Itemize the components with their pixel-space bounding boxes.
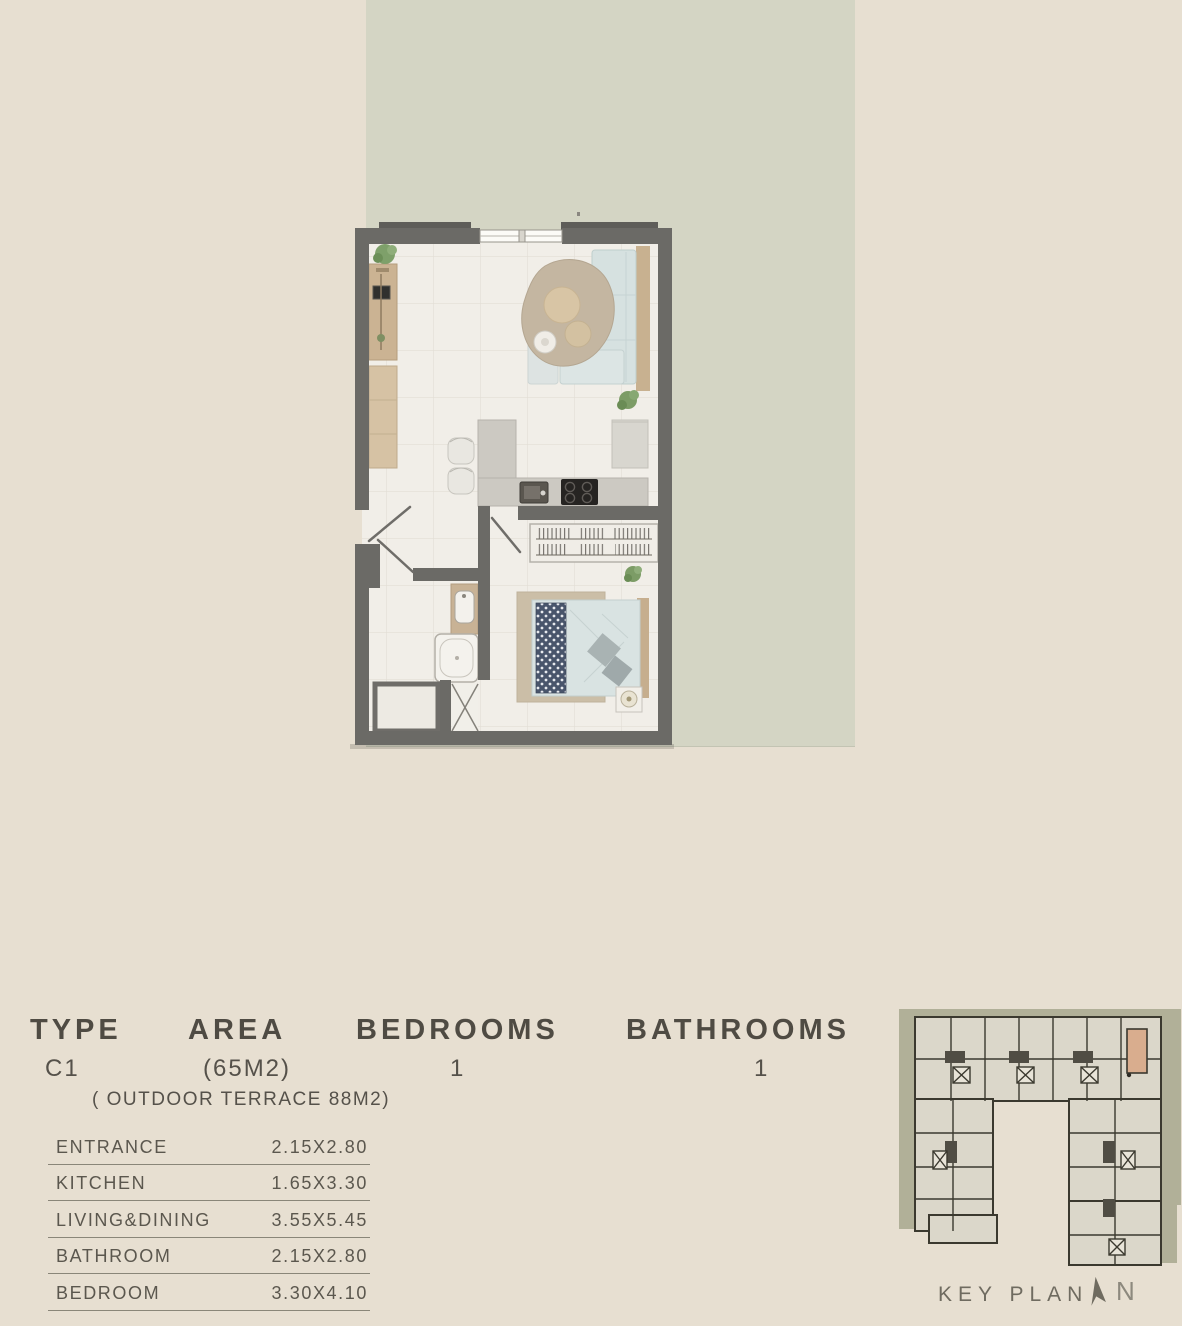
table-row: LIVING&DINING 3.55X5.45 bbox=[48, 1201, 370, 1238]
kitchen-tall-cabinet bbox=[369, 264, 397, 360]
highlighted-unit bbox=[1127, 1029, 1147, 1073]
shower bbox=[452, 684, 478, 731]
kitchen-base-cabinet bbox=[369, 366, 397, 468]
room-size: 2.15X2.80 bbox=[272, 1137, 368, 1158]
room-size: 1.65X3.30 bbox=[272, 1173, 368, 1194]
room-dimensions-table: ENTRANCE 2.15X2.80 KITCHEN 1.65X3.30 LIV… bbox=[48, 1128, 370, 1311]
header-area: AREA bbox=[188, 1014, 286, 1047]
room-label: LIVING&DINING bbox=[56, 1210, 211, 1231]
window bbox=[480, 230, 562, 242]
table-row: KITCHEN 1.65X3.30 bbox=[48, 1165, 370, 1202]
room-label: KITCHEN bbox=[56, 1173, 146, 1194]
floor-plan bbox=[340, 210, 690, 760]
header-bathrooms: BATHROOMS bbox=[626, 1014, 850, 1047]
table-row: ENTRANCE 2.15X2.80 bbox=[48, 1128, 370, 1165]
north-arrow-icon bbox=[1082, 1274, 1112, 1308]
room-size: 3.30X4.10 bbox=[272, 1283, 368, 1304]
room-size: 2.15X2.80 bbox=[272, 1246, 368, 1267]
key-plan bbox=[893, 1003, 1182, 1271]
bedroom bbox=[517, 524, 658, 712]
vase bbox=[377, 334, 385, 342]
north-label: N bbox=[1116, 1276, 1135, 1307]
stove bbox=[561, 479, 598, 505]
table-row: BEDROOM 3.30X4.10 bbox=[48, 1274, 370, 1311]
value-bedrooms: 1 bbox=[450, 1055, 465, 1083]
bed-runner bbox=[536, 603, 566, 693]
room-label: BATHROOM bbox=[56, 1246, 171, 1267]
room-size: 3.55X5.45 bbox=[272, 1210, 368, 1231]
storage-room bbox=[375, 684, 438, 731]
value-type: C1 bbox=[45, 1055, 80, 1083]
console-strip bbox=[636, 246, 650, 391]
appliance-cabinet bbox=[612, 422, 648, 468]
header-type: TYPE bbox=[30, 1014, 122, 1047]
pouf bbox=[544, 287, 580, 323]
floor-plan-sheet: { "unit_table": { "headers": { "type": "… bbox=[0, 0, 1182, 1326]
pouf-small bbox=[565, 321, 591, 347]
north-indicator: N bbox=[1082, 1274, 1135, 1308]
room-label: ENTRANCE bbox=[56, 1137, 168, 1158]
value-area: (65M2) bbox=[203, 1055, 291, 1083]
header-bedrooms: BEDROOMS bbox=[356, 1014, 559, 1047]
value-bathrooms: 1 bbox=[754, 1055, 769, 1083]
key-plan-label: KEY PLAN bbox=[938, 1283, 1088, 1307]
area-note: ( OUTDOOR TERRACE 88M2) bbox=[92, 1089, 390, 1111]
table-row: BATHROOM 2.15X2.80 bbox=[48, 1238, 370, 1275]
room-label: BEDROOM bbox=[56, 1283, 160, 1304]
